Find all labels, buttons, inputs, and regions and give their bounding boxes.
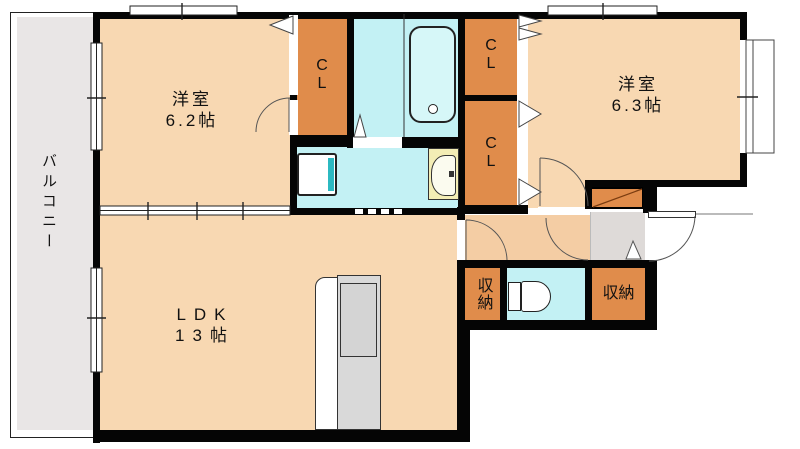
bedroom1-size: 6.2帖 bbox=[112, 110, 272, 131]
closet-fold bbox=[270, 16, 293, 34]
shoe-cabinet-diagonal bbox=[593, 189, 642, 207]
entrance-door-arc bbox=[649, 216, 695, 261]
bedroom2-name: 洋室 bbox=[558, 74, 718, 95]
bathroom-door-fold bbox=[354, 115, 366, 137]
hallway-door-arc bbox=[466, 220, 507, 260]
closet-fold bbox=[519, 28, 541, 40]
window-bedroom1-top bbox=[130, 6, 237, 15]
bedroom2-size: 6.3帖 bbox=[558, 95, 718, 116]
floorplan: バルコニー CL CL CL 収納 収納 bbox=[0, 0, 800, 449]
ldk-size: 13帖 bbox=[130, 325, 280, 346]
toilet-door-arc bbox=[546, 218, 588, 260]
closet-fold bbox=[519, 179, 541, 205]
bedroom2-label: 洋室 6.3帖 bbox=[558, 74, 718, 116]
doors-windows-overlay bbox=[0, 0, 800, 449]
ldk-name: LDK bbox=[130, 304, 280, 325]
closet-fold bbox=[519, 101, 541, 127]
ldk-label: LDK 13帖 bbox=[130, 304, 280, 346]
entry-step-marker bbox=[626, 241, 641, 259]
closet-fold bbox=[519, 15, 541, 27]
bedroom1-label: 洋室 6.2帖 bbox=[112, 89, 272, 131]
bedroom2-door-arc bbox=[540, 158, 588, 206]
bedroom1-name: 洋室 bbox=[112, 89, 272, 110]
